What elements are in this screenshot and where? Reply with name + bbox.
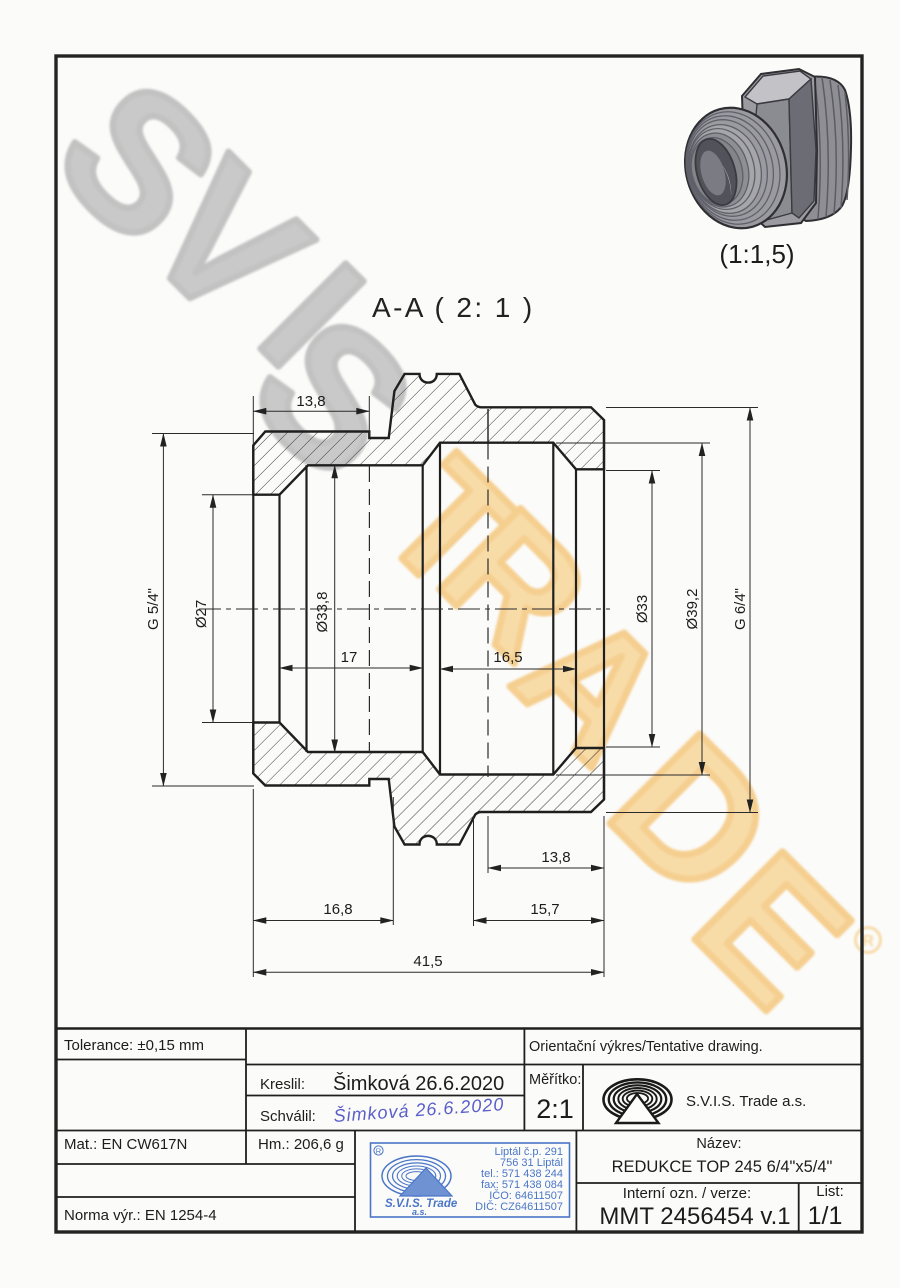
- svg-text:13,8: 13,8: [541, 849, 570, 866]
- svg-text:Ø27: Ø27: [193, 600, 210, 628]
- svg-text:1/1: 1/1: [808, 1202, 843, 1230]
- svg-text:REDUKCE TOP 245 6/4"x5/4": REDUKCE TOP 245 6/4"x5/4": [612, 1158, 833, 1176]
- svg-text:A-A ( 2: 1 ): A-A ( 2: 1 ): [372, 292, 535, 323]
- svg-text:List:: List:: [816, 1183, 844, 1200]
- svg-text:G 6/4": G 6/4": [732, 588, 749, 630]
- svg-text:Ø33,8: Ø33,8: [314, 592, 331, 633]
- svg-text:15,7: 15,7: [530, 901, 559, 918]
- svg-text:2:1: 2:1: [536, 1094, 574, 1124]
- svg-text:Orientační výkres/Tentative dr: Orientační výkres/Tentative drawing.: [529, 1039, 763, 1055]
- svg-text:Ø39,2: Ø39,2: [684, 589, 701, 630]
- svg-text:Kreslil:: Kreslil:: [260, 1076, 305, 1093]
- svg-text:R: R: [862, 933, 874, 950]
- svg-text:Název:: Název:: [696, 1136, 741, 1152]
- svg-text:17: 17: [341, 649, 358, 666]
- svg-text:R: R: [376, 1147, 382, 1156]
- svg-text:Mat.: EN CW617N: Mat.: EN CW617N: [64, 1136, 187, 1153]
- svg-text:16,5: 16,5: [493, 649, 522, 666]
- svg-text:Schválil:: Schválil:: [260, 1108, 316, 1125]
- svg-text:Tolerance: ±0,15 mm: Tolerance: ±0,15 mm: [64, 1037, 204, 1054]
- svg-text:DIČ: CZ64611507: DIČ: CZ64611507: [475, 1200, 563, 1213]
- svg-text:S.V.I.S. Trade a.s.: S.V.I.S. Trade a.s.: [686, 1093, 806, 1110]
- svg-text:a.s.: a.s.: [412, 1207, 427, 1217]
- svg-text:41,5: 41,5: [413, 953, 442, 970]
- svg-text:16,8: 16,8: [323, 901, 352, 918]
- svg-text:13,8: 13,8: [296, 393, 325, 410]
- svg-text:Norma výr.: EN 1254-4: Norma výr.: EN 1254-4: [64, 1207, 217, 1224]
- svg-text:Hm.: 206,6 g: Hm.: 206,6 g: [258, 1136, 344, 1153]
- svg-text:G 5/4": G 5/4": [145, 588, 162, 630]
- svg-text:Šimková 26.6.2020: Šimková 26.6.2020: [333, 1072, 504, 1095]
- svg-text:Měřítko:: Měřítko:: [529, 1072, 581, 1088]
- svg-text:Interní ozn. / verze:: Interní ozn. / verze:: [623, 1185, 751, 1202]
- svg-text:Ø33: Ø33: [634, 595, 651, 623]
- svg-text:MMT 2456454 v.1: MMT 2456454 v.1: [599, 1203, 790, 1230]
- svg-text:(1:1,5): (1:1,5): [719, 239, 794, 269]
